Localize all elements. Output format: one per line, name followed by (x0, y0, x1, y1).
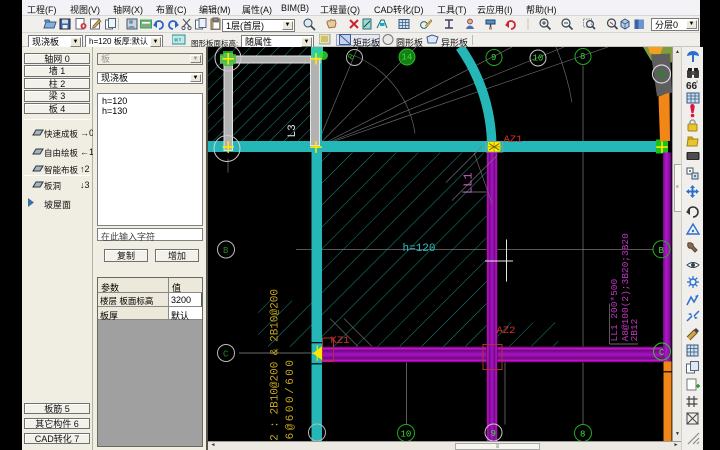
svg-text:C: C (223, 349, 229, 359)
svg-text:B: B (659, 245, 665, 255)
svg-text:°: ° (696, 81, 699, 87)
svg-text:LL1: LL1 (462, 172, 476, 194)
svg-text:2B12: 2B12 (629, 318, 640, 341)
svg-text:B: B (223, 246, 229, 256)
svg-text:C: C (659, 348, 665, 358)
svg-text:h=120: h=120 (403, 243, 436, 255)
svg-text:«▫: «▫ (174, 35, 181, 44)
svg-text:8: 8 (580, 52, 585, 62)
svg-text:A6@600/600: A6@600/600 (285, 357, 297, 441)
svg-text:AZ1: AZ1 (504, 134, 523, 146)
svg-text:AZ2: AZ2 (497, 325, 516, 337)
svg-text:10: 10 (401, 429, 412, 439)
svg-text:9: 9 (491, 53, 496, 63)
svg-text:L3: L3 (287, 124, 299, 137)
svg-text:8: 8 (580, 429, 585, 439)
svg-text:Q2 : 2B10@200 & 2B10@200: Q2 : 2B10@200 & 2B10@200 (270, 289, 282, 441)
svg-text:10: 10 (533, 53, 544, 63)
svg-text:9: 9 (491, 429, 496, 439)
svg-text:14: 14 (402, 52, 413, 62)
svg-text:LL1 200*500: LL1 200*500 (609, 278, 620, 341)
svg-text:KZ1: KZ1 (331, 335, 350, 347)
